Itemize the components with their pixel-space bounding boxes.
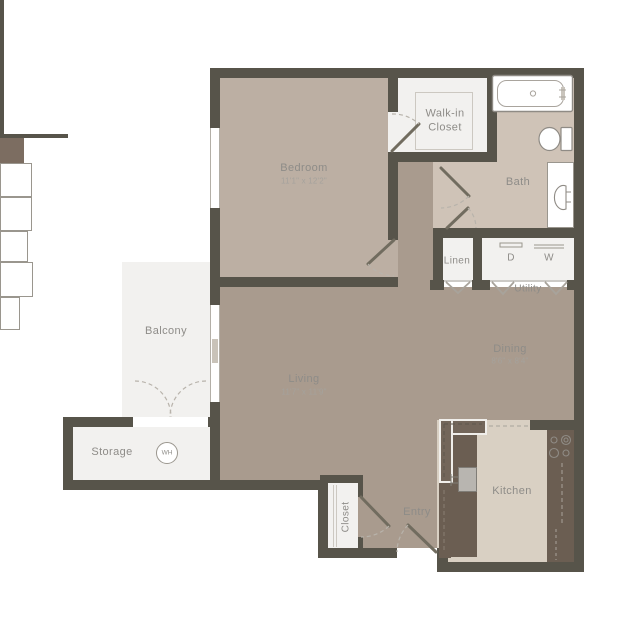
bathtub xyxy=(493,76,573,112)
living-label: Living xyxy=(288,373,319,385)
entry-label: Entry xyxy=(403,506,431,518)
vestibule-door-arc xyxy=(468,208,476,228)
bath-vanity-sink xyxy=(548,163,574,228)
kitchen-faucet xyxy=(451,474,458,486)
utility-bifold-chevron-right xyxy=(545,282,567,294)
utility-label: Utility xyxy=(514,284,541,295)
bifold-door-symbols xyxy=(444,281,567,294)
dining-dims: 8'6" x 8'4" xyxy=(491,357,528,366)
dryer-label: D xyxy=(507,253,515,264)
bedroom-label: Bedroom xyxy=(280,162,327,174)
entry-closet-label: Closet xyxy=(341,502,352,533)
entry-closet-door-leaf xyxy=(361,497,389,526)
walk-in-closet-label: Walk-in Closet xyxy=(414,107,476,136)
toilet xyxy=(539,128,572,151)
water-heater-label: WH xyxy=(162,450,173,457)
bath-door-arc xyxy=(441,196,469,208)
stove-burners xyxy=(550,436,571,458)
bedroom-dims: 11'1" x 12'2" xyxy=(281,177,327,186)
storage-label: Storage xyxy=(91,446,132,458)
appliance-control-strips xyxy=(500,243,564,248)
balcony-french-door-arc-right xyxy=(170,381,206,417)
washer-label: W xyxy=(544,253,554,264)
utility-bifold-chevron-left xyxy=(492,282,514,294)
kitchen-label: Kitchen xyxy=(492,485,532,497)
bedroom-door-arc xyxy=(368,264,394,276)
bath-door-leaf xyxy=(441,168,469,196)
bedroom-door-leaf xyxy=(368,240,394,264)
living-dims: 11'7" x 11'9" xyxy=(281,388,326,397)
entry-door-leaf xyxy=(408,525,436,552)
door-leaves xyxy=(361,124,469,552)
fixtures-overlay xyxy=(0,0,639,639)
floor-plan: Bedroom 11'1" x 12'2" Walk-in Closet Bat… xyxy=(0,0,639,639)
linen-bifold-chevron xyxy=(446,282,470,293)
linen-label: Linen xyxy=(444,256,470,267)
balcony-label: Balcony xyxy=(145,325,187,337)
bath-label: Bath xyxy=(506,176,530,188)
vestibule-door-leaf xyxy=(447,208,468,228)
entry-closet-door-arc xyxy=(361,526,389,537)
balcony-french-door-arc-left xyxy=(135,381,171,417)
entry-door-arc xyxy=(397,525,408,552)
dining-label: Dining xyxy=(493,343,527,355)
